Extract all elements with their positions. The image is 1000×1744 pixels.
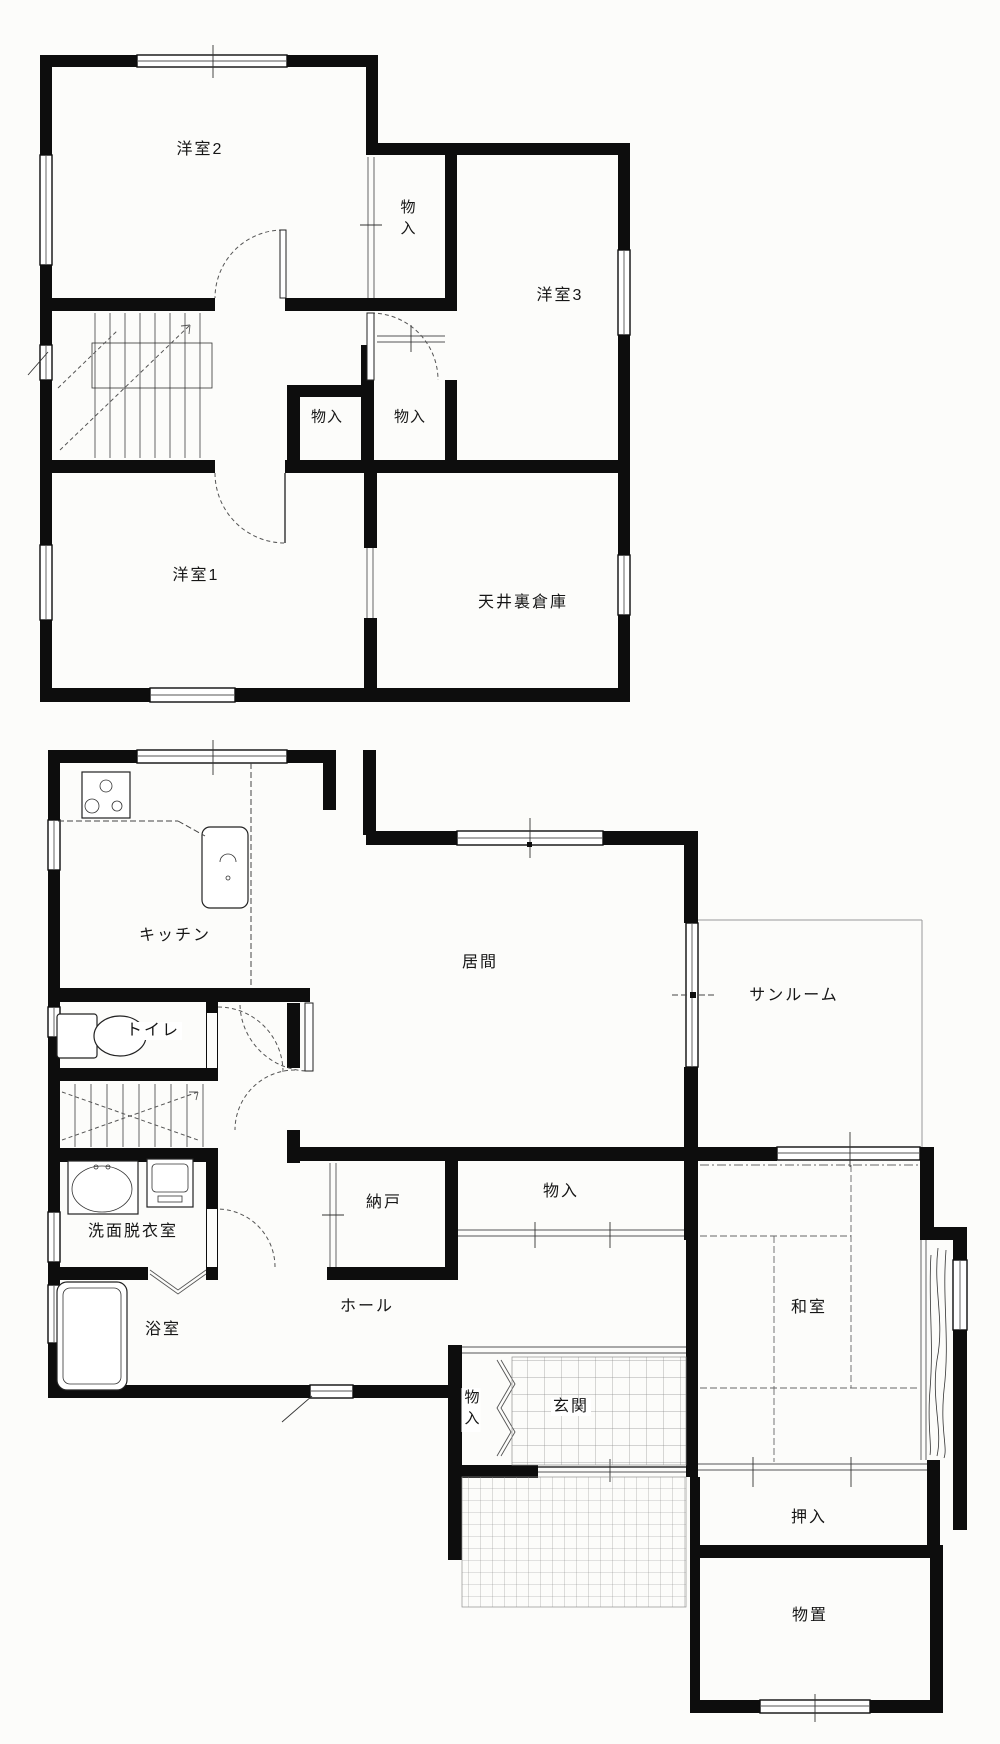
room-label-monoire-right-2f: 物入 bbox=[394, 410, 426, 425]
floor-plan-drawing bbox=[0, 0, 1000, 1744]
room-label-monoire-1f: 物入 bbox=[543, 1184, 579, 1200]
room-label-yoshitsu1: 洋室1 bbox=[173, 568, 220, 584]
genkan-floor-tile bbox=[462, 1357, 686, 1607]
room-label-hall: ホール bbox=[340, 1299, 394, 1315]
room-label-nando: 納戸 bbox=[366, 1195, 402, 1211]
stairs-2f bbox=[58, 313, 212, 458]
room-label-toilet: トイレ bbox=[124, 1022, 182, 1040]
room-label-monooki: 物置 bbox=[792, 1608, 828, 1624]
room-label-bath: 浴室 bbox=[145, 1322, 181, 1338]
room-label-monoire-upper-2f: 物入 bbox=[400, 199, 415, 241]
room-label-yoshitsu2: 洋室2 bbox=[177, 142, 224, 158]
room-label-oshiire: 押入 bbox=[791, 1510, 827, 1526]
room-label-genkan-monoire: 物入 bbox=[462, 1388, 481, 1432]
room-label-washitsu: 和室 bbox=[791, 1300, 827, 1316]
room-label-yoshitsu3: 洋室3 bbox=[537, 288, 584, 304]
room-label-kitchen: キッチン bbox=[139, 928, 211, 944]
room-label-monoire-left-2f: 物入 bbox=[311, 410, 343, 425]
room-label-ima: 居間 bbox=[462, 955, 498, 971]
sunroom-outline bbox=[672, 920, 922, 1147]
floor-1f bbox=[48, 740, 967, 1722]
room-label-senmen-datsuiishitsu: 洗面脱衣室 bbox=[88, 1224, 178, 1240]
room-label-genkan: 玄関 bbox=[551, 1398, 591, 1416]
room-label-tenjoura-soko: 天井裏倉庫 bbox=[478, 595, 568, 611]
floor-plan-sheet: 洋室2 物入 洋室3 物入 物入 洋室1 天井裏倉庫 キッチン 居間 サンルーム… bbox=[0, 0, 1000, 1744]
kitchen-fixtures bbox=[58, 763, 251, 986]
room-label-sunroom: サンルーム bbox=[749, 988, 839, 1004]
stairs-1f bbox=[62, 1084, 203, 1147]
tokonoma-wood-grain bbox=[921, 1240, 946, 1460]
